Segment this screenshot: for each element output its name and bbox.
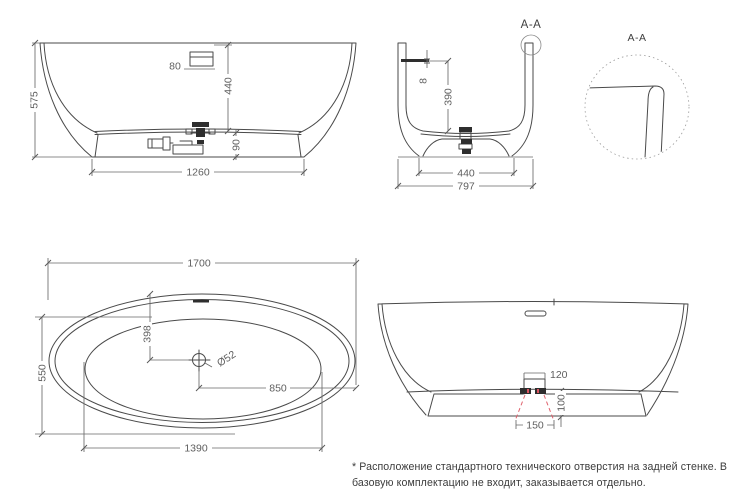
- section-callout-circle: [521, 35, 541, 55]
- dim-lines-front: [32, 43, 304, 176]
- plan-view: 1700 550 398 Ø52 850 1390: [35, 257, 359, 455]
- svg-text:1700: 1700: [187, 258, 211, 270]
- dim-label-1700: 1700: [183, 257, 215, 270]
- dim-label-80: 80: [169, 61, 181, 73]
- technical-drawing-page: 575 80 440 90 1260 A-A 8: [0, 0, 738, 504]
- section-callout-label: A-A: [521, 19, 542, 31]
- footnote: * Расположение стандартного технического…: [352, 460, 738, 491]
- svg-text:100: 100: [556, 394, 568, 412]
- drain-crosshair: [189, 350, 210, 371]
- dim-label-120: 120: [550, 369, 568, 381]
- cross-section-view: A-A 8 390 440 797: [395, 19, 541, 193]
- dim-label-8: 8: [418, 78, 430, 84]
- overflow-slot-plan: [193, 300, 209, 303]
- footnote-line-2: базовую комплектацию не входит, заказыва…: [352, 477, 646, 489]
- drain-section-fills: [459, 127, 472, 154]
- dim-label-440: 440: [222, 74, 235, 98]
- svg-text:120: 120: [550, 369, 568, 381]
- basin-opening: [85, 319, 321, 419]
- svg-text:398: 398: [142, 325, 154, 343]
- svg-text:550: 550: [37, 364, 49, 382]
- svg-text:1390: 1390: [184, 443, 208, 455]
- svg-text:80: 80: [169, 61, 181, 73]
- detail-label: A-A: [627, 32, 646, 44]
- dim-label-100: 100: [555, 391, 568, 415]
- dim-label-550: 550: [36, 361, 49, 385]
- svg-text:440: 440: [457, 168, 475, 180]
- svg-text:1260: 1260: [186, 167, 210, 179]
- dim-label-850: 850: [266, 382, 290, 395]
- tub-rim-inner-edge: [55, 300, 349, 423]
- svg-text:440: 440: [223, 77, 235, 95]
- svg-text:8: 8: [418, 78, 430, 84]
- dim-label-797: 797: [453, 180, 479, 193]
- tub-front-outline: [40, 43, 356, 157]
- rear-elevation-view: 120 150 100: [378, 299, 688, 432]
- overflow-fitting-front: [190, 52, 213, 66]
- dim-label-390: 390: [442, 85, 455, 109]
- dim-label-398: 398: [141, 322, 154, 346]
- svg-text:90: 90: [231, 139, 243, 151]
- technical-hole-marking: [515, 395, 554, 421]
- front-elevation-view: 575 80 440 90 1260: [28, 40, 356, 179]
- dim-label-575: 575: [28, 88, 41, 112]
- svg-text:390: 390: [443, 88, 455, 106]
- dim-label-90: 90: [230, 136, 243, 154]
- tub-outer-rim: [49, 294, 355, 428]
- svg-text:150: 150: [526, 420, 544, 432]
- detail-boundary-circle: [585, 55, 689, 159]
- corner-detail-view: A-A: [585, 32, 689, 159]
- svg-text:Ø52: Ø52: [215, 348, 238, 369]
- rim-detail-lines: [586, 86, 664, 158]
- footnote-line-1: * Расположение стандартного технического…: [352, 461, 727, 473]
- overflow-slot-rear: [525, 311, 546, 316]
- svg-text:850: 850: [269, 383, 287, 395]
- dim-label-1390: 1390: [180, 442, 212, 455]
- svg-text:797: 797: [457, 181, 475, 193]
- dim-label-440-section: 440: [453, 167, 479, 180]
- tub-rear-outline: [378, 299, 688, 416]
- drawing-canvas: 575 80 440 90 1260 A-A 8: [0, 0, 738, 504]
- dim-label-1260: 1260: [182, 166, 214, 179]
- svg-text:575: 575: [29, 91, 41, 109]
- dim-label-150: 150: [523, 419, 547, 432]
- dim-label-drain-diameter: Ø52: [215, 348, 238, 369]
